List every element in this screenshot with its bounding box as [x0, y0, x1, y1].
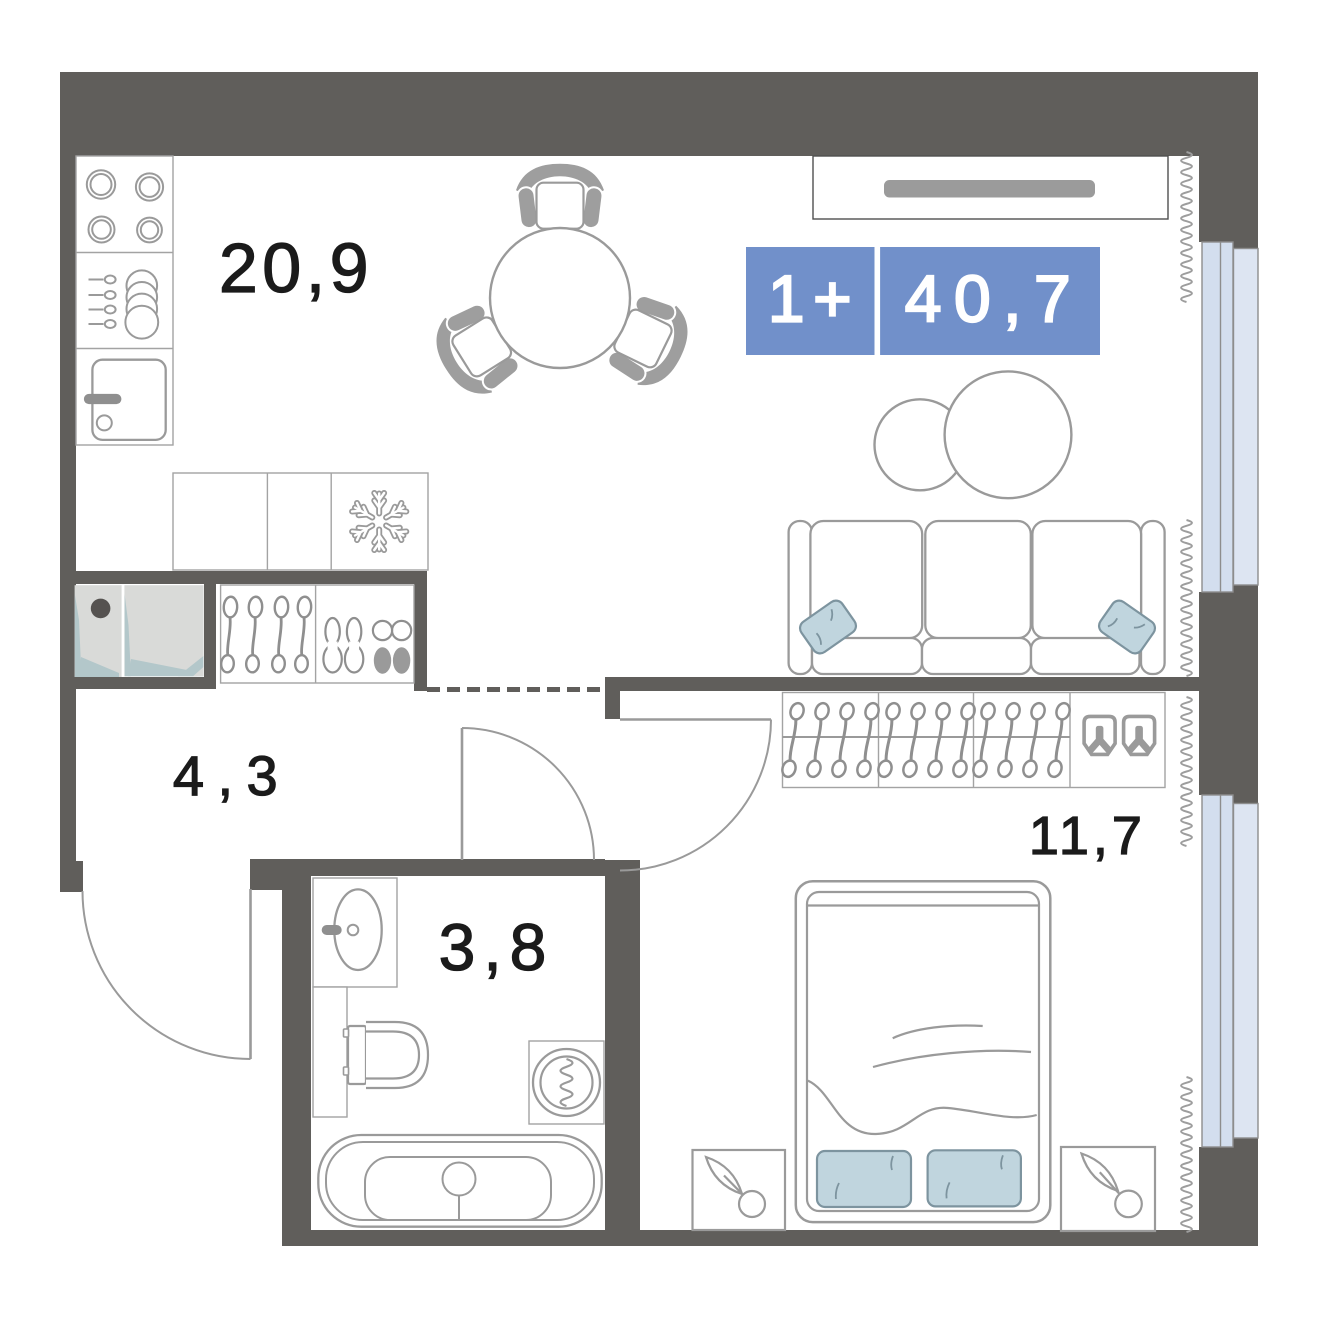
- svg-text:40,7: 40,7: [905, 262, 1083, 336]
- svg-text:4,3: 4,3: [173, 744, 291, 807]
- svg-text:11,7: 11,7: [1029, 806, 1146, 866]
- svg-text:1+: 1+: [768, 262, 860, 336]
- svg-text:20,9: 20,9: [219, 229, 373, 307]
- svg-text:3,8: 3,8: [439, 910, 555, 984]
